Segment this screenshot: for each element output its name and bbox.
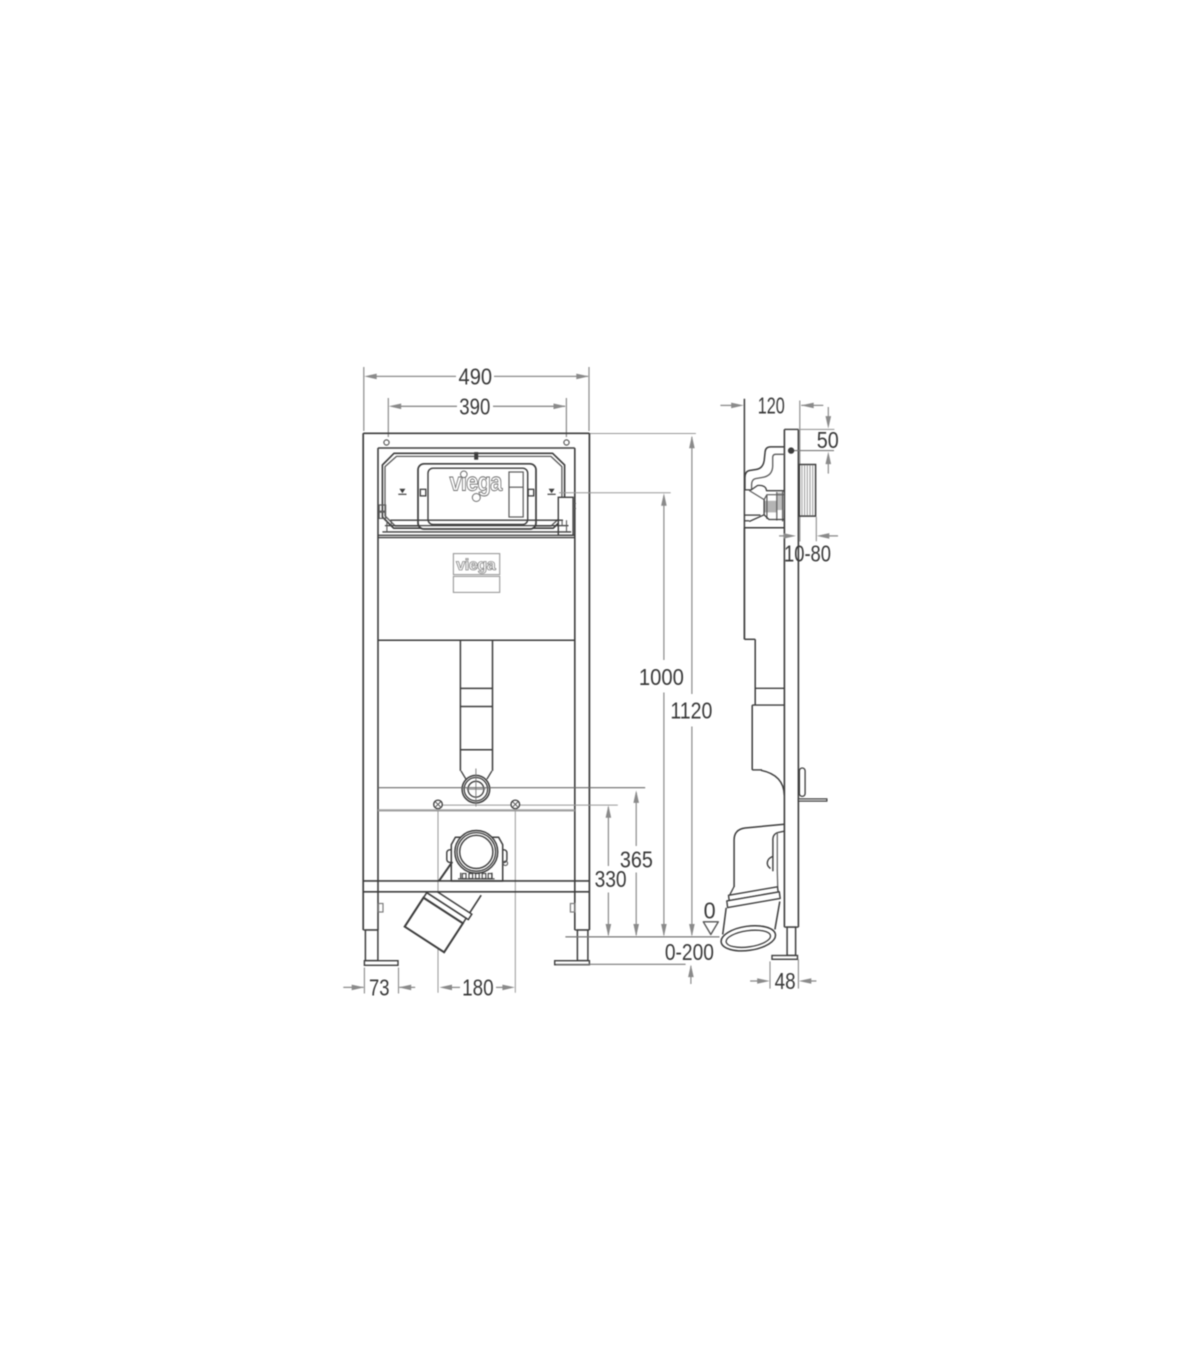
svg-text:490: 490: [459, 364, 493, 390]
svg-text:viega: viega: [456, 557, 496, 574]
svg-text:48: 48: [775, 968, 796, 994]
svg-text:viega: viega: [450, 467, 503, 497]
svg-text:73: 73: [369, 974, 390, 1000]
svg-text:120: 120: [758, 392, 785, 418]
svg-text:1000: 1000: [639, 664, 684, 690]
svg-text:180: 180: [462, 974, 494, 1000]
svg-text:390: 390: [459, 394, 490, 420]
svg-text:0-200: 0-200: [665, 939, 714, 965]
svg-text:1120: 1120: [670, 697, 712, 723]
svg-text:50: 50: [817, 427, 839, 453]
svg-text:0: 0: [704, 898, 716, 924]
svg-text:330: 330: [595, 866, 627, 892]
svg-text:10-80: 10-80: [784, 541, 831, 567]
